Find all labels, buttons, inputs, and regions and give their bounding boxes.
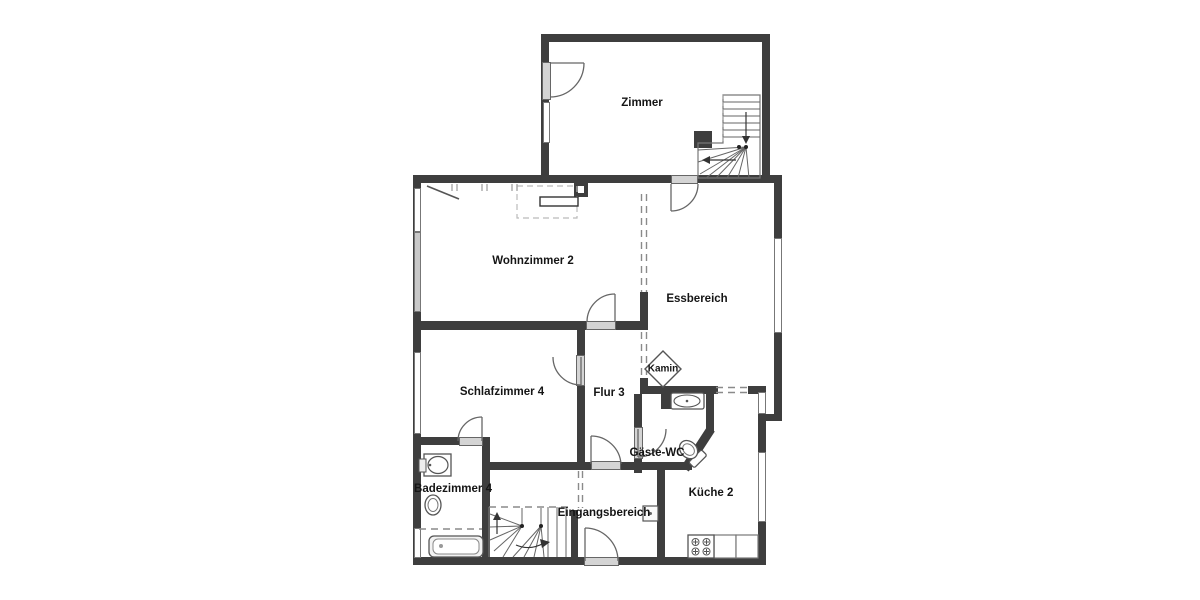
floorplan: Zimmer Wohnzimmer 2 Essbereich Kamin Sch… <box>0 0 1200 600</box>
room-label-wohnzimmer: Wohnzimmer 2 <box>492 255 574 267</box>
ceiling-marking <box>427 184 578 218</box>
stove-icon <box>688 535 714 558</box>
washbasin-icon <box>419 454 451 476</box>
room-label-zimmer: Zimmer <box>621 97 663 109</box>
room-label-gaeste-wc: Gäste-WC <box>630 447 685 459</box>
stairs-upper <box>698 95 760 178</box>
room-label-flur: Flur 3 <box>593 387 624 399</box>
washbasin-icon <box>671 393 704 409</box>
toilet-icon <box>425 495 441 515</box>
room-label-schlafzimmer: Schlafzimmer 4 <box>460 386 544 398</box>
kitchen-counter <box>714 535 758 558</box>
stairs-lower <box>489 507 566 557</box>
opening-dashed <box>419 194 748 529</box>
shelf <box>540 197 578 206</box>
room-label-kamin: Kamin <box>648 364 679 375</box>
room-label-eingangsbereich: Eingangsbereich <box>558 507 651 519</box>
room-label-kueche: Küche 2 <box>689 487 734 499</box>
room-label-badezimmer: Badezimmer 4 <box>414 483 492 495</box>
bathtub-icon <box>429 536 483 557</box>
room-label-essbereich: Essbereich <box>666 293 727 305</box>
